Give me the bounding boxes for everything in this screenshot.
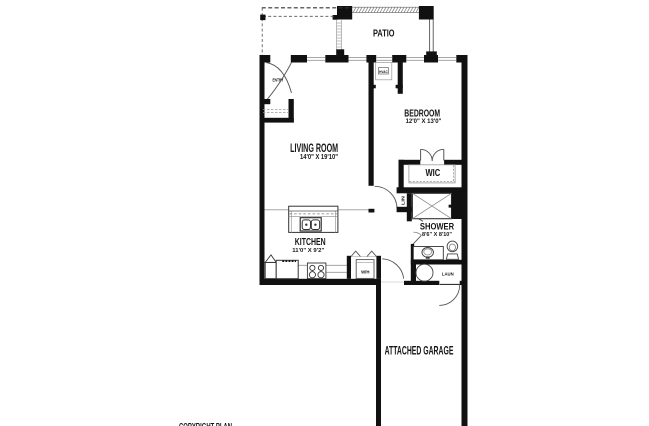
svg-text:COPYRIGHT PLAN: COPYRIGHT PLAN — [179, 422, 232, 426]
svg-text:14'0" X 19'10": 14'0" X 19'10" — [300, 152, 338, 161]
svg-text:ATTACHED GARAGE: ATTACHED GARAGE — [385, 343, 454, 357]
svg-text:ENTRY: ENTRY — [273, 78, 284, 83]
svg-text:12'0" X 13'0": 12'0" X 13'0" — [406, 118, 442, 125]
svg-text:11'0" X 9'2": 11'0" X 9'2" — [292, 248, 324, 254]
svg-text:WIC: WIC — [426, 167, 441, 179]
svg-text:W/H: W/H — [361, 270, 369, 275]
svg-text:SHOWER: SHOWER — [420, 222, 455, 232]
svg-text:8'6" X 8'10": 8'6" X 8'10" — [422, 232, 452, 238]
svg-text:LIN: LIN — [401, 196, 406, 205]
svg-text:HVAC: HVAC — [379, 69, 388, 74]
svg-text:LAUN: LAUN — [442, 272, 454, 277]
svg-text:PATIO: PATIO — [373, 29, 395, 40]
svg-text:KITCHEN: KITCHEN — [295, 237, 326, 248]
